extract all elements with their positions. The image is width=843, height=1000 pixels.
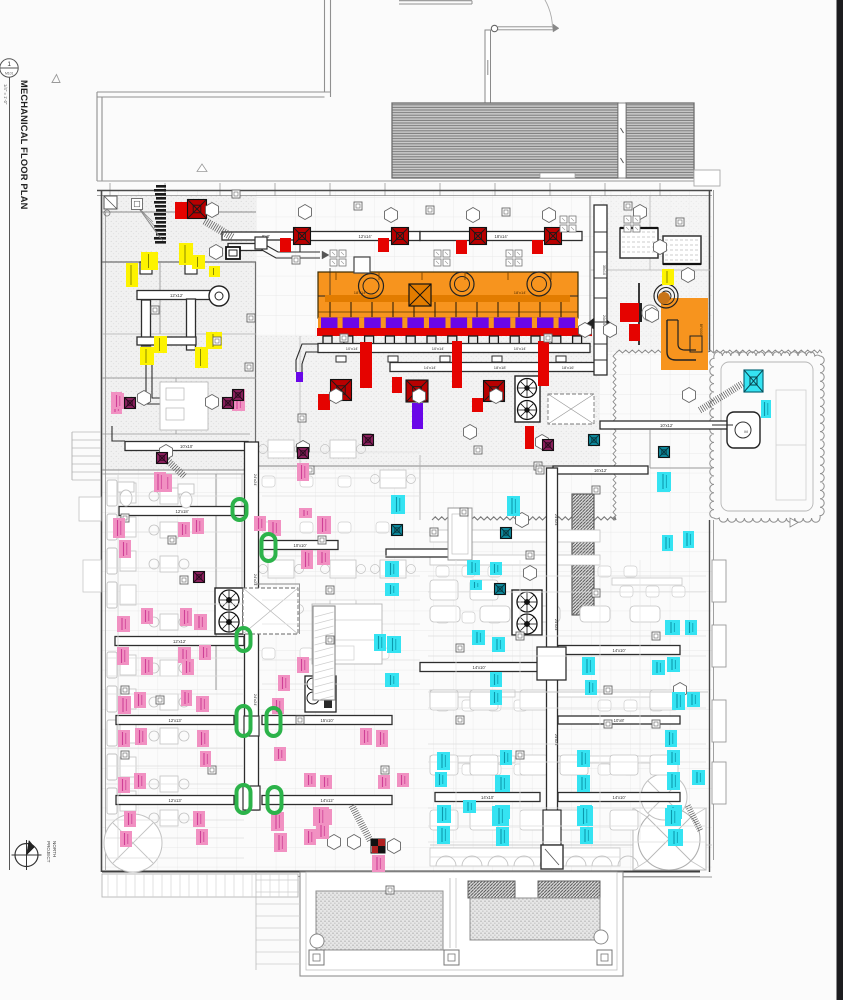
svg-text:15'x10': 15'x10': [320, 718, 333, 723]
svg-text:M101: M101: [5, 72, 14, 76]
svg-text:1: 1: [7, 61, 11, 68]
svg-text:10'x14': 10'x14': [432, 346, 445, 351]
svg-text:12'x13': 12'x13': [168, 718, 181, 723]
svg-text:18'x16': 18'x16': [562, 365, 575, 370]
svg-text:18'x18': 18'x18': [494, 365, 507, 370]
svg-text:12'x14': 12'x14': [358, 234, 371, 239]
svg-text:12'x12': 12'x12': [173, 639, 186, 644]
svg-text:10'x10': 10'x10': [180, 444, 193, 449]
svg-text:24'x24': 24'x24': [554, 619, 559, 632]
svg-text:24'x24': 24'x24': [253, 694, 258, 707]
svg-text:10'x12': 10'x12': [660, 423, 673, 428]
svg-text:14'x10': 14'x10': [481, 795, 494, 800]
svg-text:24'x24': 24'x24': [554, 514, 559, 527]
svg-text:10'x10': 10'x10': [293, 543, 306, 548]
svg-text:24x16: 24x16: [602, 315, 606, 325]
svg-text:1/4" = 1'-0": 1/4" = 1'-0": [3, 84, 8, 105]
svg-text:10'x14': 10'x14': [514, 346, 527, 351]
svg-text:PROJECT: PROJECT: [46, 841, 51, 863]
svg-text:14'x14': 14'x14': [424, 365, 437, 370]
svg-text:30x10: 30x10: [602, 265, 606, 275]
svg-text:10'x8': 10'x8': [614, 718, 625, 723]
svg-text:BF0008: BF0008: [699, 324, 703, 337]
svg-text:10'x14': 10'x14': [346, 346, 359, 351]
svg-text:12'x18': 12'x18': [175, 509, 188, 514]
svg-text:12'x12': 12'x12': [170, 293, 183, 298]
svg-text:M: M: [744, 429, 747, 434]
svg-text:12'x13': 12'x13': [168, 798, 181, 803]
svg-text:14'x12': 14'x12': [320, 798, 333, 803]
svg-text:16'x12': 16'x12': [594, 468, 607, 473]
svg-text:NORTH: NORTH: [52, 841, 57, 857]
svg-text:14'x10': 14'x10': [472, 665, 485, 670]
svg-text:24'x24': 24'x24': [253, 474, 258, 487]
svg-text:18'x14': 18'x14': [514, 290, 527, 295]
svg-text:14'x10': 14'x10': [612, 795, 625, 800]
svg-text:24'x24': 24'x24': [554, 734, 559, 747]
svg-text:MECHANICAL FLOOR PLAN: MECHANICAL FLOOR PLAN: [19, 80, 29, 210]
svg-text:18'x14': 18'x14': [494, 234, 507, 239]
svg-text:14'x10': 14'x10': [612, 648, 625, 653]
